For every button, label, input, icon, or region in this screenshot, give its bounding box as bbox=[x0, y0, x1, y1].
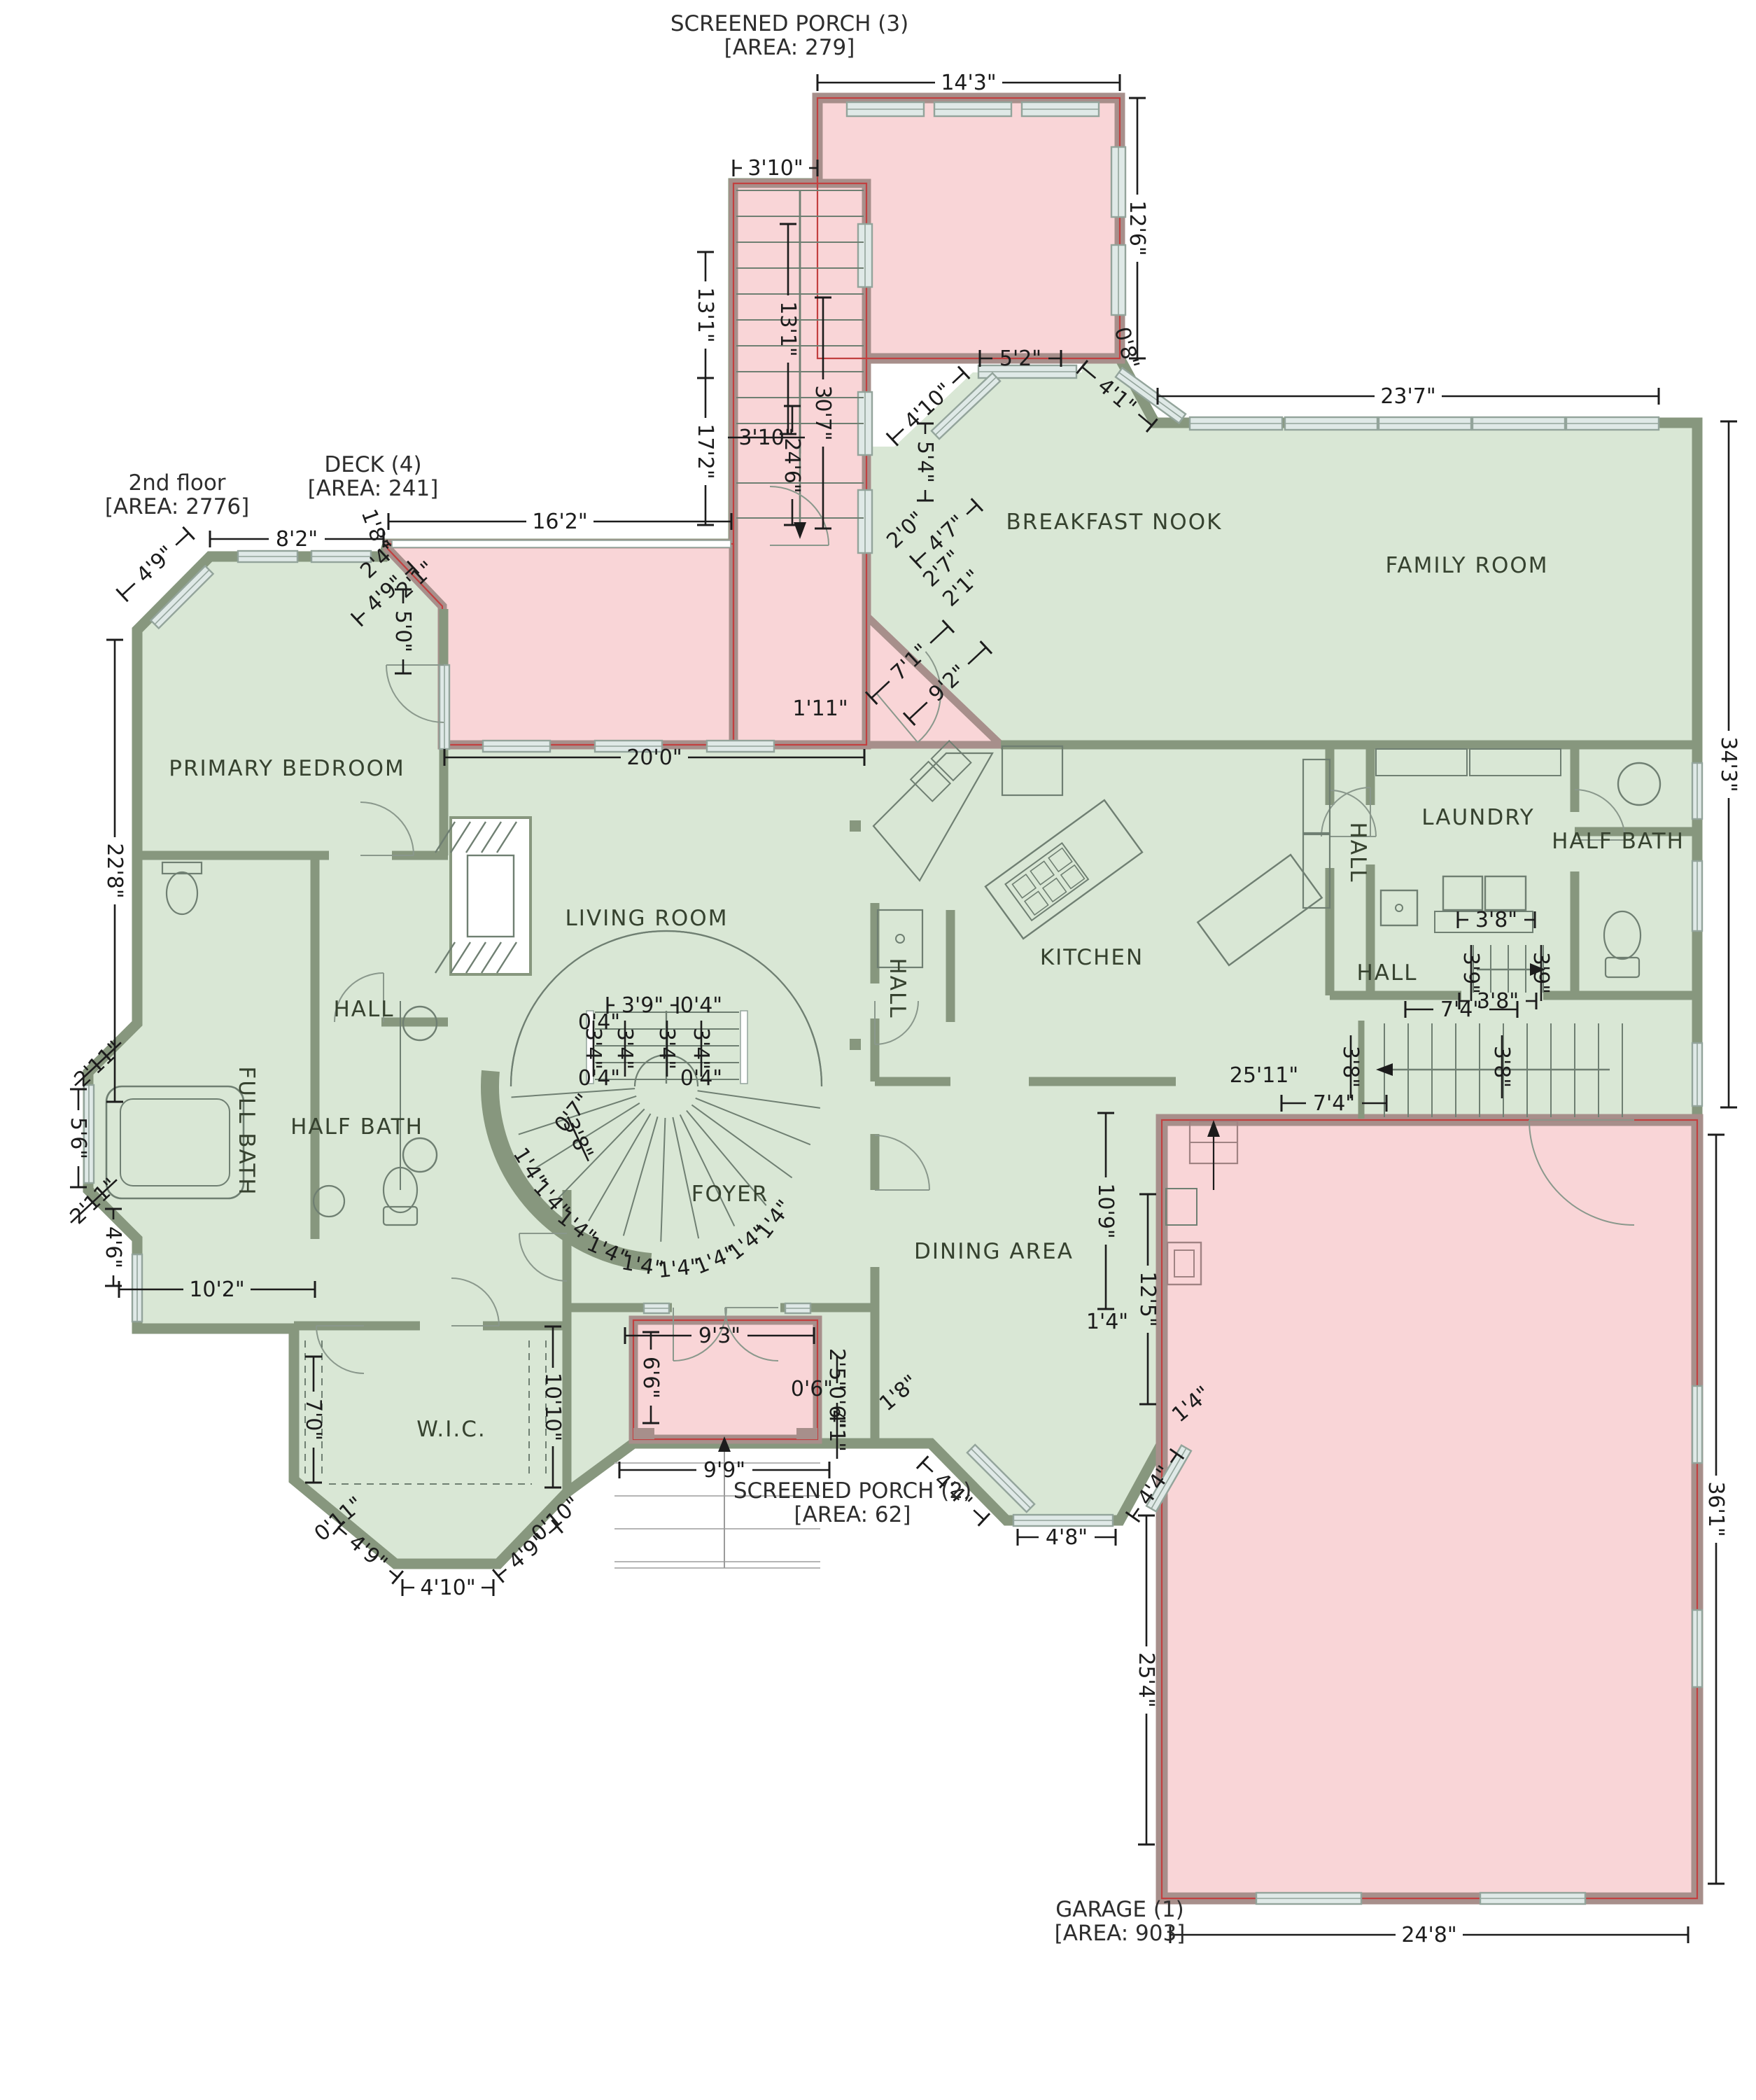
dimension-label: 25'4" bbox=[1134, 1652, 1158, 1707]
dimension-label: 13'1" bbox=[775, 301, 800, 356]
dimension: 23'7" bbox=[1158, 384, 1659, 409]
dimension-label: 34'3" bbox=[1716, 736, 1741, 792]
room-label: LIVING ROOM bbox=[566, 906, 729, 931]
room-label: W.I.C. bbox=[416, 1417, 486, 1442]
dimension-label: 3'4" bbox=[689, 1028, 713, 1070]
dimension-label: 12'6" bbox=[1125, 200, 1149, 255]
dimension-label: 3'8" bbox=[1489, 1046, 1514, 1088]
dimension-label: 3'8" bbox=[1338, 1046, 1363, 1088]
dimension-label: 20'0" bbox=[626, 745, 682, 770]
dimension-label: 5'6" bbox=[66, 1117, 90, 1159]
porch-post bbox=[633, 1428, 654, 1439]
floor-plan-drawing: 14'3"3'10"12'6"13'1"17'2"13'1"30'7"24'6"… bbox=[0, 0, 1756, 2100]
dimension: 16'2" bbox=[388, 510, 731, 534]
dimension-label: 3'9" bbox=[1459, 952, 1483, 994]
area-label-line2: [AREA: 241] bbox=[308, 476, 439, 501]
dimension-label: 6'6" bbox=[638, 1357, 663, 1399]
room-label: HALL bbox=[1356, 960, 1417, 986]
dimension: 17'2" bbox=[693, 378, 717, 525]
room-label: BREAKFAST NOOK bbox=[1006, 510, 1223, 535]
dimension-label: 13'1" bbox=[693, 287, 717, 342]
garage-1 bbox=[1162, 1120, 1697, 1898]
room-label: DINING AREA bbox=[914, 1239, 1074, 1264]
dimension: 12'6" bbox=[1125, 98, 1149, 358]
dimension-label: 36'1" bbox=[1704, 1481, 1728, 1536]
dimension: 3'4" bbox=[654, 1021, 679, 1077]
dimension: 1'4" bbox=[1086, 1310, 1128, 1334]
dimension: 3'10" bbox=[733, 156, 817, 181]
dimension-label: 9'3" bbox=[698, 1324, 740, 1348]
room-label: HALL bbox=[333, 997, 394, 1022]
fireplace bbox=[451, 818, 531, 974]
column-marker bbox=[850, 820, 861, 832]
floor-plan-page: 14'3"3'10"12'6"13'1"17'2"13'1"30'7"24'6"… bbox=[0, 0, 1756, 2100]
dimension: 8'2" bbox=[210, 527, 384, 552]
dimension-label: 3'4" bbox=[612, 1028, 637, 1070]
porch-post bbox=[796, 1428, 817, 1439]
area-label-deck-4: DECK (4)[AREA: 241] bbox=[308, 452, 439, 501]
dimension-label: 3'8" bbox=[1475, 908, 1517, 932]
dimension-label: 7'4" bbox=[1313, 1091, 1355, 1116]
area-label-line1: SCREENED PORCH (2) bbox=[733, 1478, 971, 1504]
dimension: 36'1" bbox=[1704, 1135, 1728, 1884]
dimension-label: 3'10" bbox=[738, 426, 794, 450]
dimension-label: 10'2" bbox=[189, 1277, 244, 1302]
dimension-label: 24'8" bbox=[1401, 1923, 1456, 1947]
area-label-line2: [AREA: 279] bbox=[724, 35, 855, 60]
dimension: 4'10" bbox=[402, 1576, 493, 1600]
room-label: HALL bbox=[885, 958, 910, 1018]
area-label-line2: [AREA: 62] bbox=[794, 1502, 911, 1527]
dimension-label: 5'4" bbox=[913, 441, 937, 483]
dimension-label: 0'4" bbox=[578, 1066, 620, 1091]
dimension-label: 3'4" bbox=[581, 1028, 605, 1070]
dimension-label: 3'10" bbox=[747, 156, 803, 181]
dimension: 3'9" bbox=[1459, 945, 1483, 1001]
dimension-label: 12'5" bbox=[1135, 1271, 1160, 1326]
dimension: 14'3" bbox=[817, 71, 1120, 95]
dimension-label: 16'2" bbox=[532, 510, 587, 534]
area-label-line2: [AREA: 903] bbox=[1055, 1921, 1186, 1946]
room-label: FOYER bbox=[691, 1182, 769, 1207]
room-label: HALF BATH bbox=[290, 1114, 423, 1140]
dimension: 4'8" bbox=[1018, 1525, 1116, 1550]
area-label-second-floor: 2nd floor[AREA: 2776] bbox=[105, 470, 249, 519]
dimension-label: 4'6" bbox=[101, 1226, 125, 1268]
dimension-label: 8'2" bbox=[276, 527, 318, 552]
deck-rail bbox=[392, 540, 731, 547]
dimension: 0'4" bbox=[680, 1066, 722, 1091]
dimension-label: 17'2" bbox=[693, 423, 717, 479]
stair-rail bbox=[740, 1011, 747, 1084]
dimension-label: 22'8" bbox=[102, 843, 127, 898]
dimension: 3'10" bbox=[728, 426, 805, 450]
dimension-label: 4'9" bbox=[132, 541, 179, 588]
area-label-screened-porch-2: SCREENED PORCH (2)[AREA: 62] bbox=[733, 1478, 971, 1527]
dimension: 25'11" bbox=[1230, 1063, 1298, 1088]
area-label-line2: [AREA: 2776] bbox=[105, 494, 249, 519]
dimension: 4'1" bbox=[824, 1403, 849, 1459]
dimension-label: 1'4" bbox=[1086, 1310, 1128, 1334]
dimension-label: 4'1" bbox=[824, 1410, 849, 1452]
dimension-label: 14'3" bbox=[941, 71, 996, 95]
dimension-label: 7'0" bbox=[301, 1399, 325, 1441]
dimension-label: 10'9" bbox=[1093, 1183, 1118, 1238]
room-label: KITCHEN bbox=[1040, 945, 1144, 970]
dimension: 3'9" bbox=[1529, 945, 1553, 1001]
dimension-label: 3'9" bbox=[1529, 952, 1553, 994]
area-label-line1: 2nd floor bbox=[128, 470, 225, 496]
room-label: LAUNDRY bbox=[1421, 805, 1534, 830]
dimension-label: 30'7" bbox=[810, 385, 835, 440]
dimension-label: 3'9" bbox=[621, 993, 663, 1018]
room-label: FULL BATH bbox=[234, 1066, 259, 1196]
dimension-label: 0'4" bbox=[680, 993, 722, 1018]
area-label-screened-porch-3: SCREENED PORCH (3)[AREA: 279] bbox=[670, 11, 908, 60]
area-label-garage-1: GARAGE (1)[AREA: 903] bbox=[1055, 1897, 1186, 1946]
dimension-label: 4'10" bbox=[420, 1576, 475, 1600]
dimension: 1'11" bbox=[792, 696, 848, 721]
dimension-label: 23'7" bbox=[1380, 384, 1435, 409]
room-label: FAMILY ROOM bbox=[1385, 553, 1548, 578]
dimension: 24'8" bbox=[1170, 1923, 1688, 1947]
area-label-line1: SCREENED PORCH (3) bbox=[670, 11, 908, 36]
area-label-line1: GARAGE (1) bbox=[1055, 1897, 1184, 1922]
dimension-label: 1'11" bbox=[792, 696, 848, 721]
dimension: 13'1" bbox=[693, 252, 717, 378]
dimension: 25'4" bbox=[1134, 1515, 1158, 1844]
column-marker bbox=[850, 1039, 861, 1050]
dimension-label: 5'2" bbox=[999, 346, 1041, 371]
dimension: 0'4" bbox=[578, 1066, 620, 1091]
area-label-line1: DECK (4) bbox=[324, 452, 421, 477]
dimension-label: 25'11" bbox=[1230, 1063, 1298, 1088]
room-label: HALL bbox=[1345, 822, 1370, 883]
dimension-label: 10'10" bbox=[540, 1373, 565, 1441]
dimension-label: 3'4" bbox=[654, 1028, 679, 1070]
dimension-label: 4'8" bbox=[1046, 1525, 1088, 1550]
room-label: HALF BATH bbox=[1552, 829, 1685, 854]
room-label: PRIMARY BEDROOM bbox=[169, 756, 405, 781]
dimension-label: 5'0" bbox=[391, 610, 415, 652]
dimension: 0'4" bbox=[680, 993, 722, 1018]
dimension-label: 0'4" bbox=[680, 1066, 722, 1091]
dimension: 34'3" bbox=[1716, 421, 1741, 1107]
